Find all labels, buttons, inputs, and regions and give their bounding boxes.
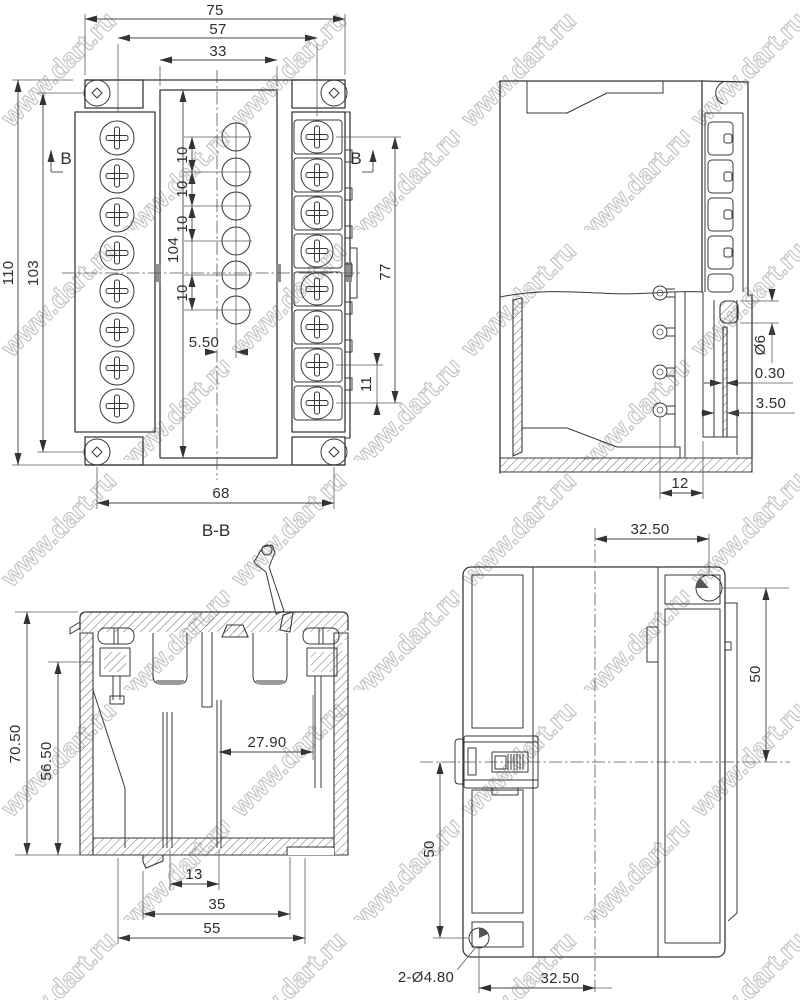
section-label-b-right: B — [350, 149, 361, 168]
dim-cavity-width: 27.90 — [247, 734, 286, 751]
left-wall — [80, 633, 93, 855]
dim-section-height: 70.50 — [7, 724, 24, 763]
din-screw — [720, 301, 738, 323]
dim-inner-width: 35 — [208, 896, 225, 913]
dim-hole-pitch-3: 10 — [174, 215, 191, 232]
dim-hole-pitch-1: 10 — [174, 146, 191, 163]
dim-terminal-span: 77 — [377, 263, 394, 280]
dim-wall-350: 3.50 — [756, 395, 786, 412]
drawing-page: www.dart.ru www.dart.ru — [0, 0, 800, 1000]
section-title: B-B — [202, 521, 230, 540]
dim-inner-height: 56.50 — [38, 741, 55, 780]
dim-overall-height: 110 — [0, 261, 17, 286]
dim-hole-pitch-2: 10 — [174, 180, 191, 197]
dim-hole-offset-bottom: 32.50 — [540, 970, 579, 987]
thin-wall — [723, 327, 727, 437]
dim-blade-gap: 13 — [185, 866, 202, 883]
dim-wall-030: 0.30 — [755, 365, 785, 382]
dim-screw-span: 57 — [209, 21, 226, 38]
dim-hole-span-left: 50 — [421, 840, 438, 857]
dim-mount-hole-spacing-v: 103 — [25, 260, 42, 286]
left-wall-section — [513, 298, 522, 456]
dim-overall-width: 75 — [206, 2, 223, 19]
center-hump — [222, 625, 248, 637]
dim-hole-offset-top: 32.50 — [630, 521, 669, 538]
dim-hole-pitch-4: 10 — [174, 284, 191, 301]
dim-hole-offset: 5.50 — [189, 334, 219, 351]
section-label-b-left: B — [60, 149, 71, 168]
dim-screw-diameter: Ø6 — [752, 335, 769, 356]
dim-window-width: 33 — [209, 43, 226, 60]
dim-window-height: 104 — [165, 237, 182, 263]
dim-terminal-pitch: 11 — [358, 376, 375, 392]
dim-base-width: 55 — [203, 920, 220, 937]
dim-hole-callout: 2-Ø4.80 — [398, 969, 454, 986]
bottom-wall-section — [500, 458, 752, 472]
engineering-drawing: www.dart.ru www.dart.ru — [0, 0, 800, 1000]
dim-hole-span-right: 50 — [747, 665, 764, 682]
dim-pin-offset: 12 — [671, 475, 688, 492]
dim-mount-hole-spacing-h: 68 — [212, 485, 229, 502]
right-wall — [334, 633, 348, 855]
